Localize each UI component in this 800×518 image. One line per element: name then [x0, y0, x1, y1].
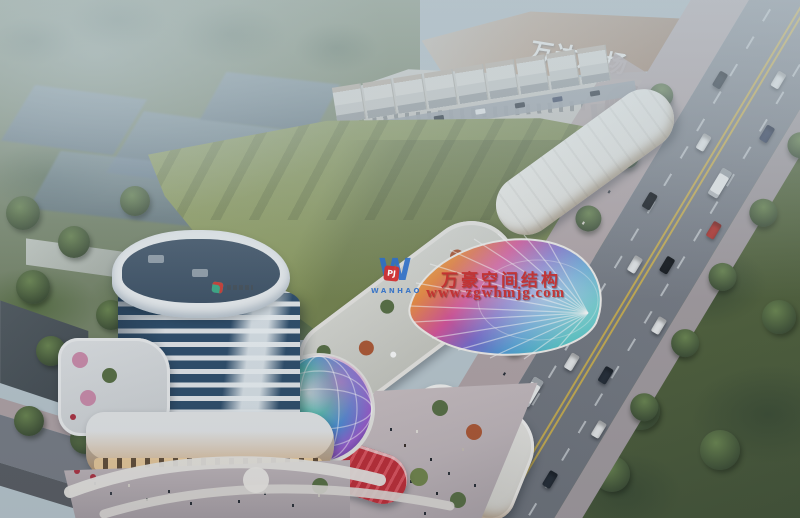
- tower-roof-deck: [122, 239, 280, 303]
- watermark-badge-icon: PJ: [383, 265, 399, 281]
- shop-unit: [454, 64, 488, 104]
- blossom-tree: [80, 390, 96, 406]
- crest-text: [227, 285, 253, 290]
- blossom-tree: [72, 352, 88, 368]
- watermark-logo-name: WANHAO: [371, 287, 419, 295]
- pedestrians: [390, 428, 392, 431]
- tree: [16, 270, 50, 304]
- crest-mark-icon: [211, 281, 223, 293]
- shop-unit: [485, 59, 519, 99]
- shop-unit: [516, 54, 550, 94]
- tree: [700, 430, 740, 470]
- tower-crest-logo: [212, 282, 256, 296]
- rooftop-unit: [148, 255, 164, 263]
- curved-walkways: [60, 440, 460, 518]
- umbrella: [70, 414, 76, 420]
- terrace-tree: [377, 297, 397, 317]
- umbrella: [389, 350, 397, 358]
- shop-unit: [393, 74, 427, 114]
- tree: [58, 226, 90, 258]
- tree: [762, 300, 796, 334]
- rooftop-unit: [192, 269, 208, 277]
- tree: [120, 186, 150, 216]
- terrace-tree: [102, 368, 117, 383]
- shop-unit: [332, 83, 366, 123]
- aerial-dusk-rendering: 万达广场: [0, 0, 800, 518]
- watermark-url-text: www.zgwhmjg.com: [426, 285, 565, 302]
- tree: [6, 196, 40, 230]
- shop-unit: [424, 69, 458, 109]
- autumn-tree: [466, 424, 482, 440]
- shop-unit: [546, 49, 580, 89]
- tree: [14, 406, 44, 436]
- shop-unit: [577, 45, 611, 85]
- shop-unit: [363, 79, 397, 119]
- plaza-tree: [432, 400, 448, 416]
- tower-crown: [112, 230, 290, 318]
